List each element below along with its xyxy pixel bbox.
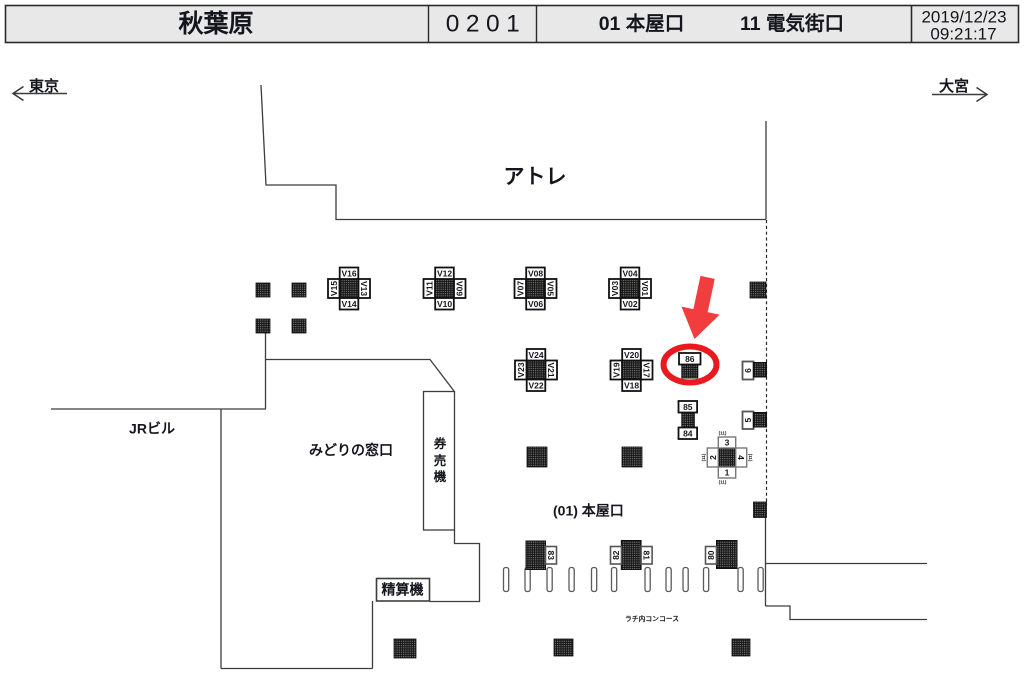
svg-text:JRビル: JRビル [129, 421, 175, 437]
svg-text:V15: V15 [329, 281, 339, 296]
svg-text:01 本屋口: 01 本屋口 [599, 12, 685, 35]
svg-text:V13: V13 [359, 281, 369, 296]
svg-text:V10: V10 [437, 299, 452, 309]
svg-text:V01: V01 [640, 281, 650, 296]
svg-text:3: 3 [725, 438, 730, 448]
svg-text:(11): (11) [719, 480, 727, 485]
svg-text:09:21:17: 09:21:17 [930, 25, 996, 44]
svg-text:(01) 本屋口: (01) 本屋口 [553, 503, 624, 519]
svg-text:V17: V17 [642, 362, 652, 377]
svg-text:精算機: 精算機 [382, 582, 424, 598]
svg-text:V23: V23 [516, 362, 526, 377]
svg-text:2: 2 [708, 455, 718, 460]
svg-text:V04: V04 [622, 269, 637, 279]
svg-text:券: 券 [433, 436, 447, 451]
svg-text:V20: V20 [624, 350, 639, 360]
svg-text:V09: V09 [455, 281, 465, 296]
svg-text:83: 83 [546, 550, 556, 560]
svg-text:84: 84 [683, 429, 693, 439]
svg-text:82: 82 [611, 550, 621, 560]
svg-text:東京: 東京 [29, 77, 59, 95]
svg-text:V05: V05 [546, 281, 556, 296]
svg-text:V02: V02 [622, 299, 637, 309]
svg-text:V07: V07 [516, 281, 526, 296]
svg-text:V22: V22 [528, 380, 543, 390]
svg-text:V08: V08 [528, 269, 543, 279]
svg-text:V18: V18 [624, 380, 639, 390]
svg-text:85: 85 [683, 402, 693, 412]
svg-text:80: 80 [706, 550, 716, 560]
svg-text:アトレ: アトレ [504, 166, 567, 189]
svg-text:(11): (11) [748, 454, 753, 462]
svg-text:11 電気街口: 11 電気街口 [740, 12, 844, 35]
svg-text:V12: V12 [437, 269, 452, 279]
svg-text:V19: V19 [612, 362, 622, 377]
svg-text:5: 5 [743, 418, 753, 423]
svg-text:81: 81 [641, 550, 651, 560]
svg-text:86: 86 [685, 354, 695, 364]
svg-text:V16: V16 [341, 269, 356, 279]
svg-text:(11): (11) [701, 453, 706, 461]
svg-text:6: 6 [743, 368, 753, 373]
svg-text:秋葉原: 秋葉原 [178, 10, 253, 38]
svg-text:大宮: 大宮 [939, 77, 969, 95]
svg-text:V03: V03 [610, 281, 620, 296]
svg-text:4: 4 [736, 455, 746, 460]
svg-text:みどりの窓口: みどりの窓口 [309, 442, 393, 458]
svg-text:売: 売 [434, 453, 447, 468]
svg-text:1: 1 [725, 468, 730, 478]
svg-text:ラチ内コンコース: ラチ内コンコース [625, 614, 679, 623]
svg-text:(11): (11) [719, 430, 727, 435]
svg-text:0201: 0201 [446, 11, 527, 38]
svg-text:V24: V24 [528, 350, 543, 360]
svg-text:機: 機 [434, 469, 447, 484]
svg-text:V11: V11 [425, 281, 435, 296]
svg-text:V14: V14 [341, 299, 356, 309]
svg-text:V06: V06 [528, 299, 543, 309]
svg-text:V21: V21 [546, 362, 556, 377]
